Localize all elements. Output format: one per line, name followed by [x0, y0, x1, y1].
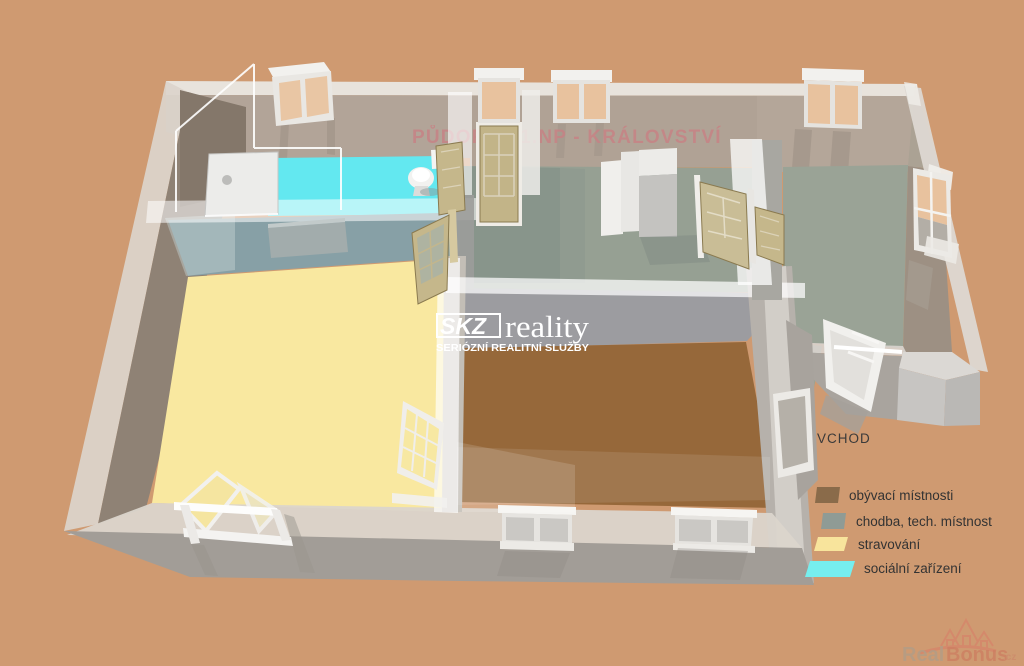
- svg-text:reality: reality: [505, 309, 590, 344]
- svg-text:obývací místnosti: obývací místnosti: [849, 488, 953, 503]
- svg-text:.cz: .cz: [1003, 652, 1016, 663]
- svg-text:Bonus: Bonus: [946, 644, 1008, 666]
- svg-text:VCHOD: VCHOD: [817, 431, 871, 446]
- svg-text:SKZ: SKZ: [440, 313, 487, 339]
- svg-text:SERIÓZNÍ REALITNÍ SLUŽBY: SERIÓZNÍ REALITNÍ SLUŽBY: [436, 341, 589, 354]
- svg-text:Real: Real: [902, 644, 944, 666]
- svg-text:sociální zařízení: sociální zařízení: [864, 561, 962, 576]
- svg-text:chodba, tech. místnost: chodba, tech. místnost: [856, 514, 992, 529]
- svg-text:stravování: stravování: [858, 537, 921, 552]
